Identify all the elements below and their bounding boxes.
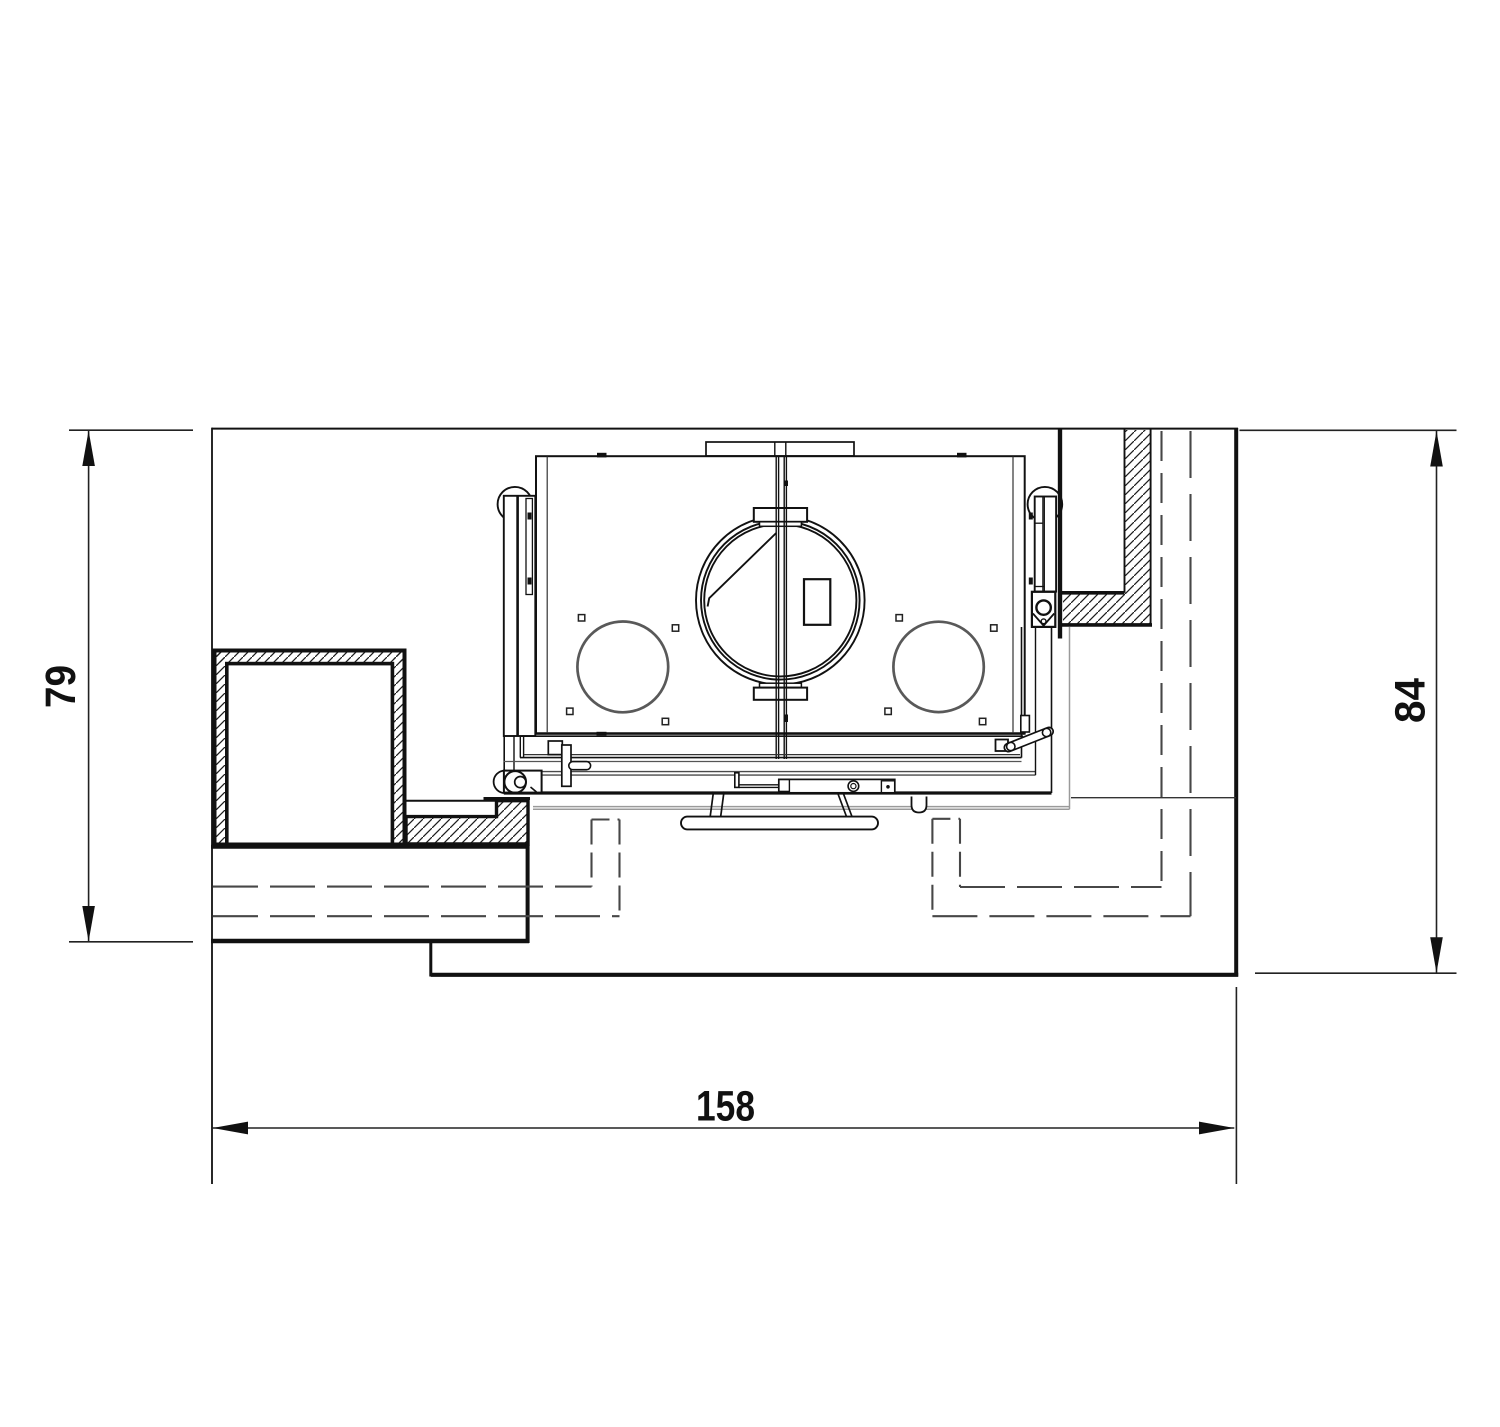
svg-text:79: 79: [38, 665, 85, 708]
svg-text:158: 158: [696, 1084, 755, 1131]
svg-text:84: 84: [1388, 678, 1435, 723]
